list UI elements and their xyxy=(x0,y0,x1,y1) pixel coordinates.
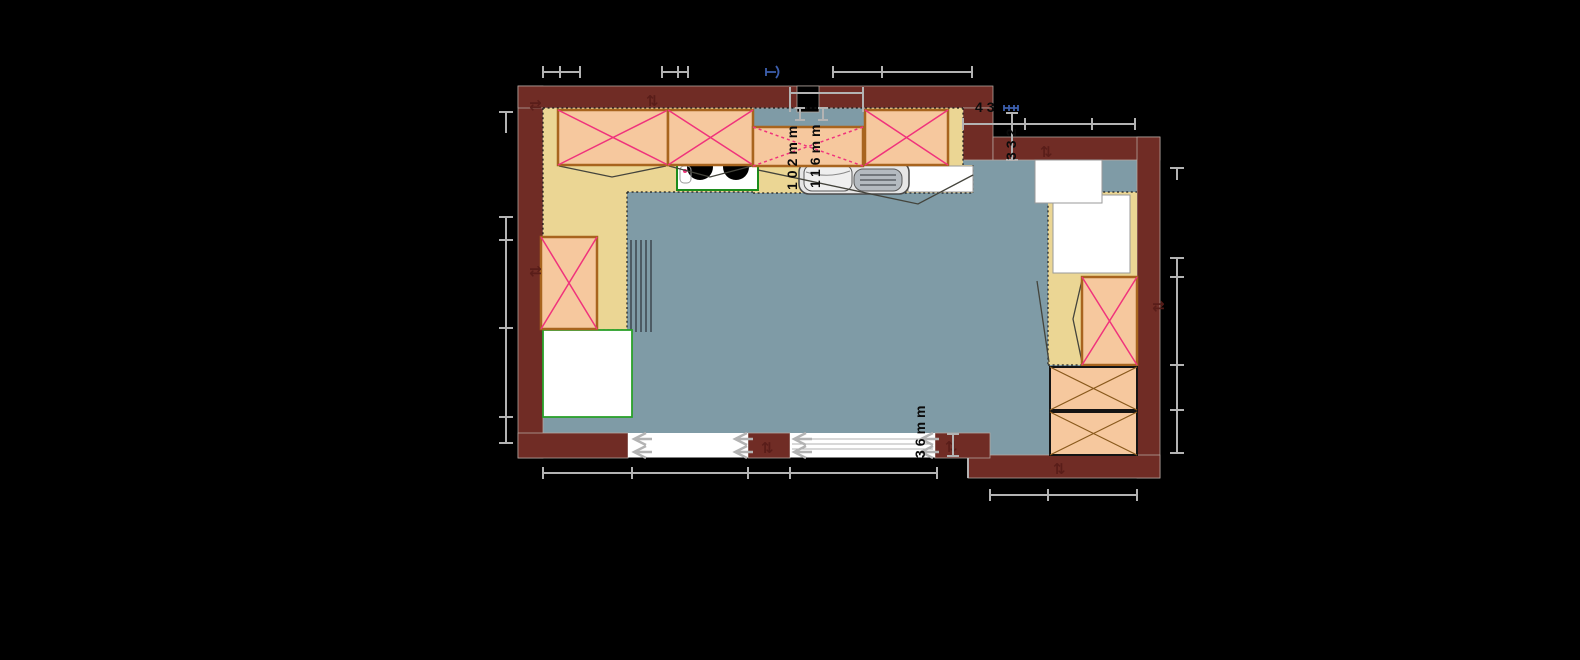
wall-cabinet xyxy=(558,110,668,165)
updown-arrows-icon: ⇅ xyxy=(646,92,659,110)
wall-bottom-jog xyxy=(935,433,990,458)
wall-cabinet-right xyxy=(1082,277,1137,365)
wall-cabinet xyxy=(865,110,948,165)
dim-top-blue-mark xyxy=(766,66,779,78)
updown-arrows-icon: ⇅ xyxy=(1053,460,1066,478)
dim-label-top-right-width: 43 xyxy=(975,99,999,115)
appliance-top-right xyxy=(1035,160,1102,203)
updown-arrows-icon: ⇅ xyxy=(526,99,544,112)
dim-label-niche-right: 116mm xyxy=(807,121,823,188)
dim-top-seg1 xyxy=(543,66,580,78)
updown-arrows-icon: ⇅ xyxy=(761,439,774,457)
wall-top-step xyxy=(963,108,993,160)
countertop-strip-right xyxy=(948,108,963,165)
dim-label-niche-left: 102mm xyxy=(784,122,800,190)
dim-top-seg3 xyxy=(833,66,972,78)
dim-bottom-right xyxy=(990,489,1137,501)
dim-bottom-left xyxy=(543,458,968,479)
dim-label-top-right-height: 332 xyxy=(1003,125,1019,160)
dishwasher xyxy=(908,166,973,192)
appliance-bottom-left xyxy=(543,330,632,417)
tall-unit xyxy=(1050,412,1137,455)
dim-blue-comb xyxy=(1004,105,1018,111)
tall-unit xyxy=(1050,367,1137,410)
updown-arrows-icon: ⇅ xyxy=(1149,300,1167,313)
dim-right-top xyxy=(1170,168,1184,180)
updown-arrows-icon: ⇅ xyxy=(526,265,544,278)
dim-top-seg2 xyxy=(662,66,688,78)
wall-cabinet xyxy=(668,110,753,165)
dim-right-main xyxy=(1170,258,1184,453)
wall-top xyxy=(518,86,993,108)
tall-units xyxy=(1050,367,1137,455)
dim-left-main xyxy=(499,217,513,443)
wall-cabinet-left xyxy=(541,237,597,329)
dim-label-door-gap: 36mm xyxy=(912,402,928,458)
updown-arrows-icon: ⇅ xyxy=(945,438,958,456)
dim-left-top xyxy=(499,112,513,133)
floor-plan-canvas: ⇅ ⇅ ⇅ ⇅ ⇅ ⇅ ⇅ ⇅ 102mm 116mm xyxy=(0,0,1580,660)
appliance-right-large xyxy=(1053,195,1130,273)
updown-arrows-icon: ⇅ xyxy=(1040,143,1053,161)
wall-bottom-left xyxy=(518,433,628,458)
opening-window xyxy=(628,433,748,458)
